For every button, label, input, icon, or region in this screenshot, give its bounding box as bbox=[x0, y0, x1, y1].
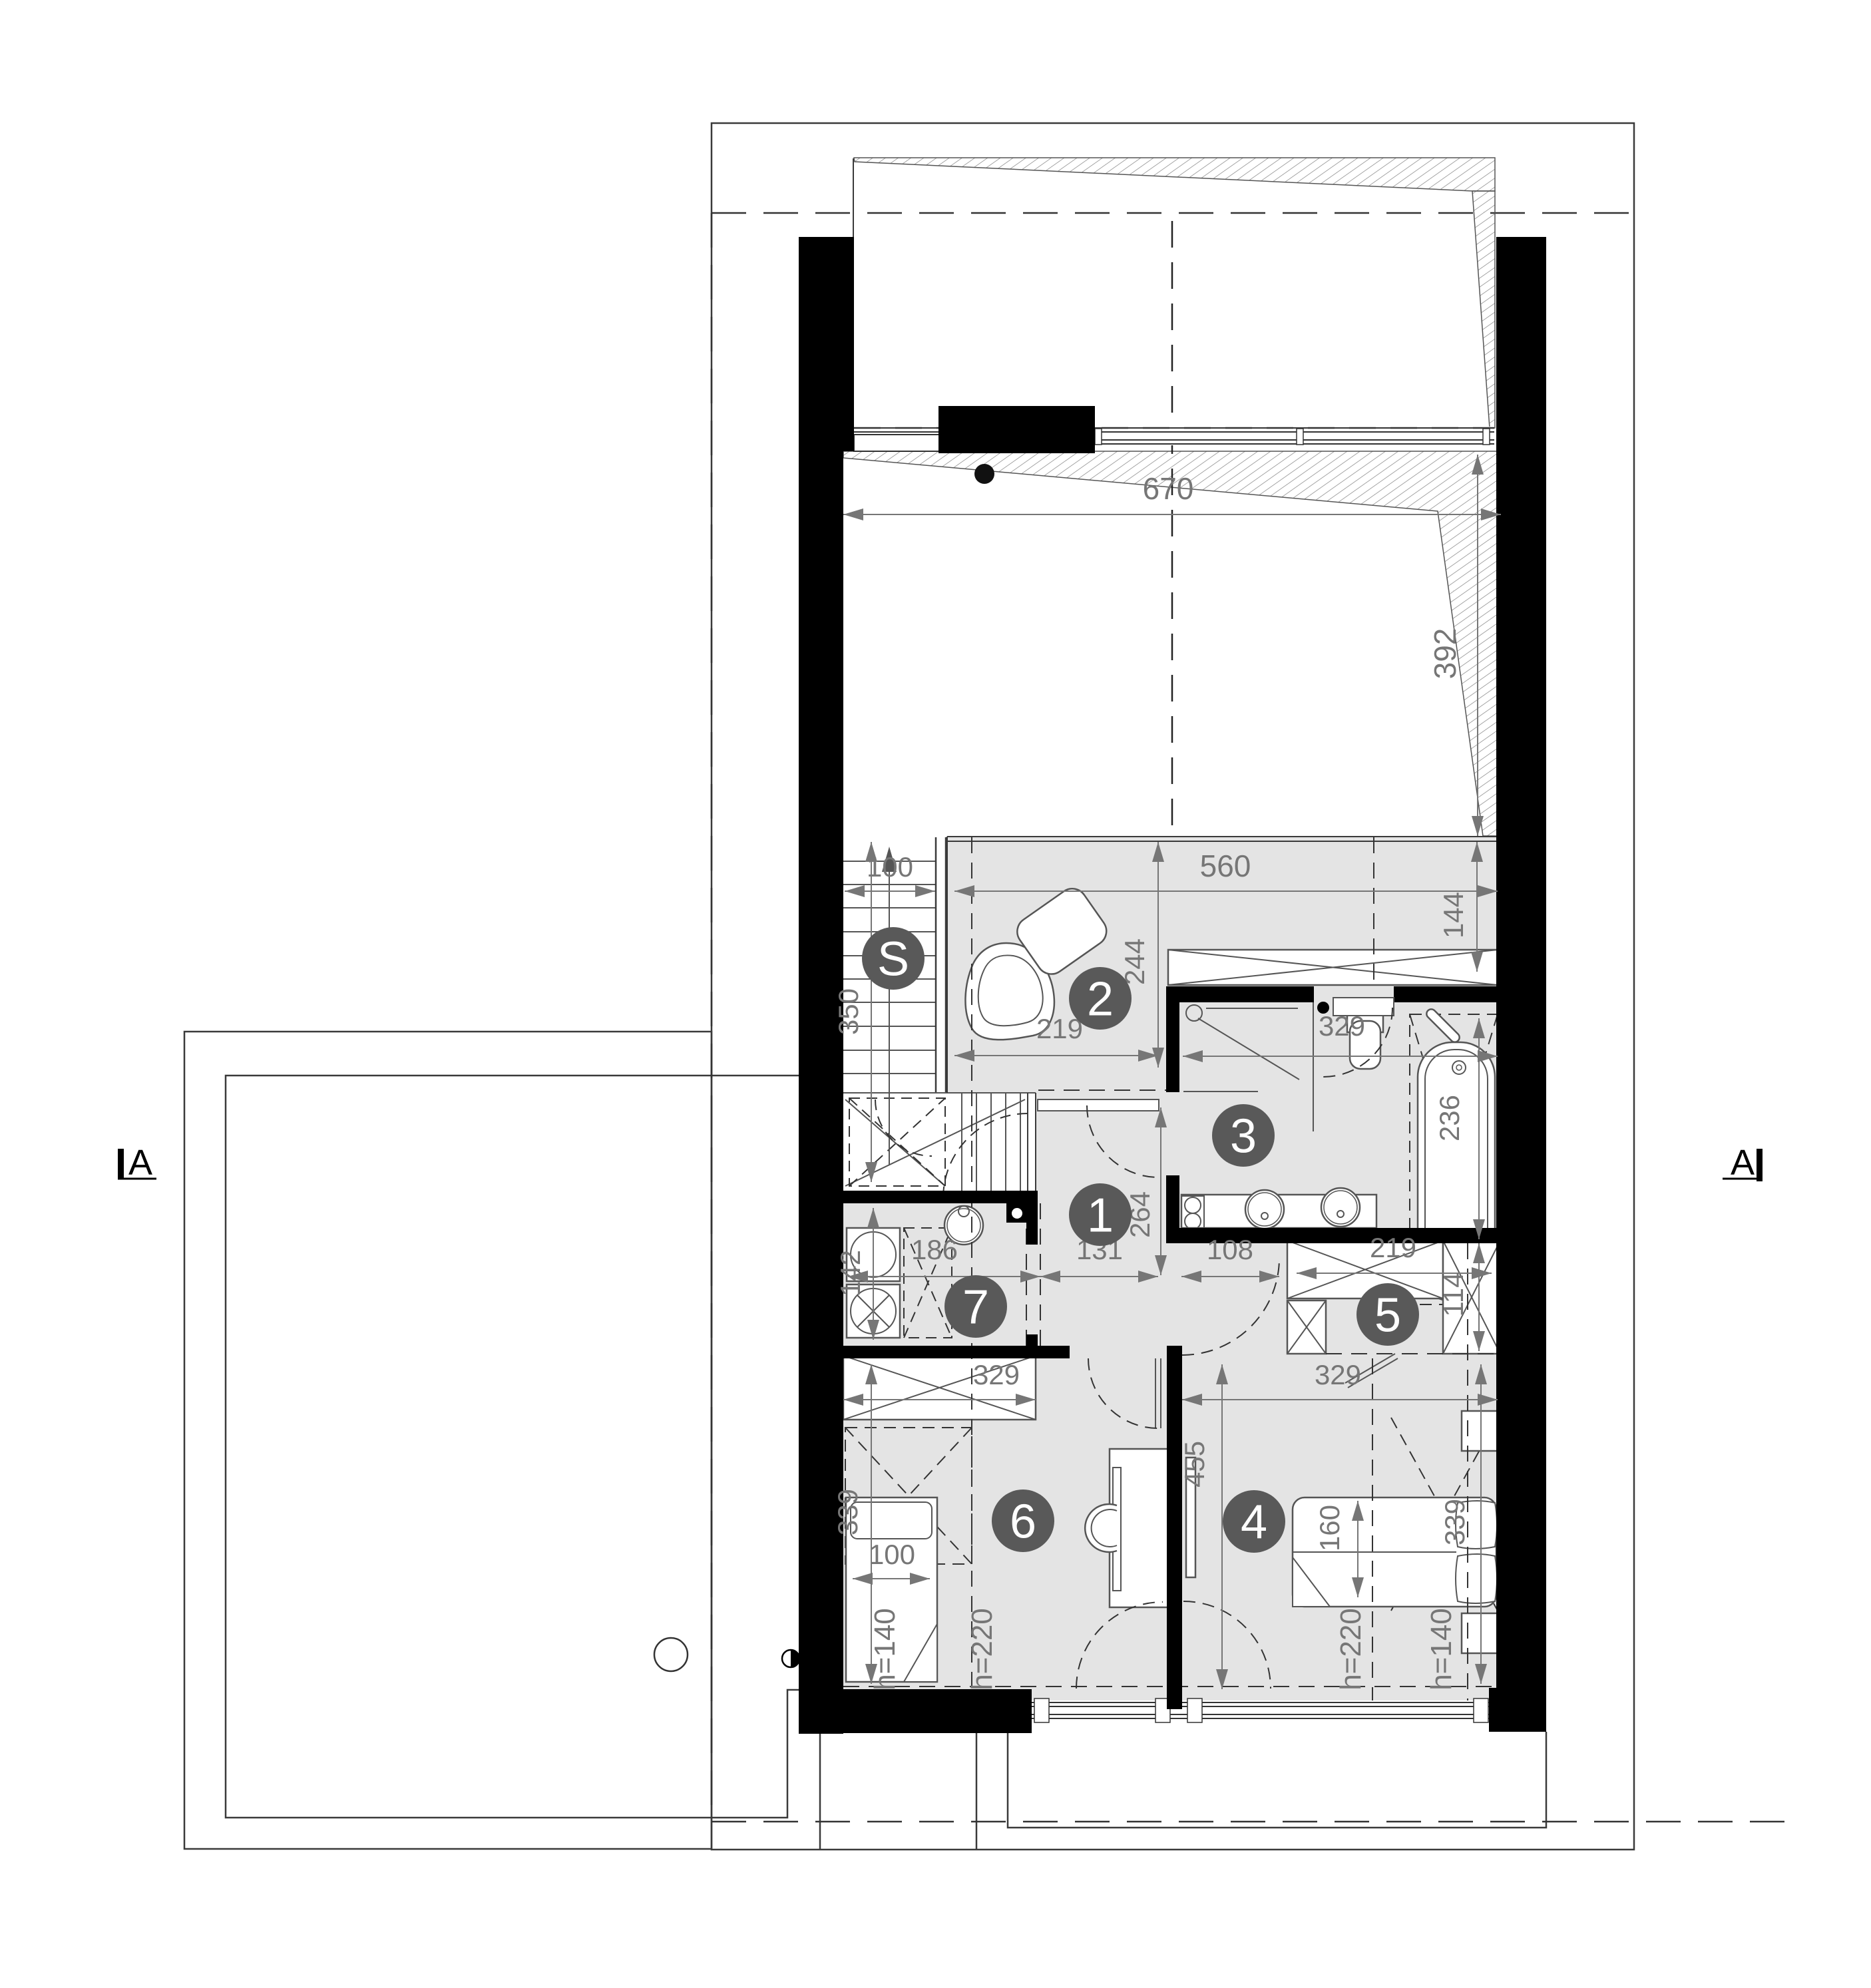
svg-text:6: 6 bbox=[1010, 1495, 1036, 1549]
svg-text:339: 339 bbox=[832, 1489, 863, 1535]
svg-text:3: 3 bbox=[1230, 1110, 1257, 1163]
svg-text:339: 339 bbox=[1439, 1499, 1470, 1545]
svg-text:186: 186 bbox=[911, 1234, 958, 1265]
svg-text:144: 144 bbox=[1438, 892, 1469, 938]
svg-text:392: 392 bbox=[1428, 628, 1462, 680]
svg-text:100: 100 bbox=[869, 1539, 915, 1570]
svg-text:h=140: h=140 bbox=[1425, 1608, 1458, 1690]
svg-text:108: 108 bbox=[1207, 1234, 1253, 1265]
svg-text:236: 236 bbox=[1434, 1095, 1465, 1141]
svg-text:455: 455 bbox=[1179, 1441, 1210, 1488]
svg-text:2: 2 bbox=[1087, 973, 1114, 1026]
svg-text:142: 142 bbox=[835, 1250, 866, 1296]
svg-text:560: 560 bbox=[1200, 849, 1251, 883]
svg-text:A: A bbox=[1731, 1143, 1755, 1183]
svg-text:329: 329 bbox=[1319, 1010, 1365, 1042]
svg-text:5: 5 bbox=[1374, 1289, 1401, 1342]
svg-text:329: 329 bbox=[973, 1359, 1020, 1390]
svg-text:A: A bbox=[128, 1143, 152, 1183]
svg-text:160: 160 bbox=[1314, 1505, 1345, 1551]
svg-text:670: 670 bbox=[1143, 471, 1194, 506]
svg-text:219: 219 bbox=[1370, 1232, 1416, 1263]
svg-text:329: 329 bbox=[1315, 1359, 1361, 1390]
svg-text:350: 350 bbox=[833, 988, 864, 1035]
svg-text:114: 114 bbox=[1438, 1273, 1469, 1317]
svg-text:S: S bbox=[877, 933, 909, 986]
svg-text:7: 7 bbox=[962, 1281, 989, 1334]
svg-text:h=220: h=220 bbox=[966, 1608, 998, 1690]
svg-text:1: 1 bbox=[1087, 1189, 1114, 1243]
svg-text:h=140: h=140 bbox=[869, 1608, 901, 1690]
svg-text:h=220: h=220 bbox=[1335, 1608, 1367, 1690]
svg-text:4: 4 bbox=[1241, 1496, 1267, 1549]
